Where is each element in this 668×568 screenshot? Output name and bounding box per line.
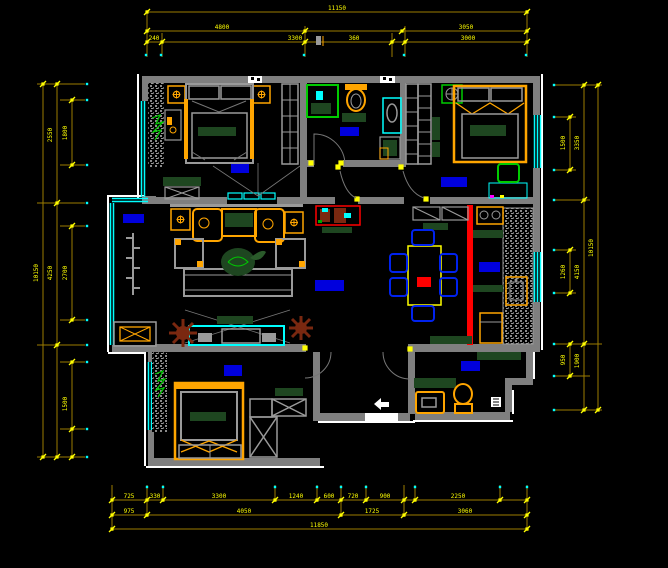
svg-text:1500: 1500 xyxy=(62,396,69,411)
svg-text:10150: 10150 xyxy=(33,264,40,282)
svg-text:4150: 4150 xyxy=(574,264,581,279)
decor-cabinet xyxy=(316,206,360,225)
vanity xyxy=(165,110,181,140)
entry-hall xyxy=(365,398,398,421)
window-bedroom-2 xyxy=(535,115,541,168)
shelf xyxy=(275,388,303,396)
svg-text:360: 360 xyxy=(349,35,360,42)
bench xyxy=(163,177,201,199)
cad-viewport: 11150 4800 3050 240 3300 360 3000 725 33… xyxy=(0,0,668,568)
bath-cabinet xyxy=(380,137,400,159)
svg-text:4250: 4250 xyxy=(47,265,54,280)
svg-text:240: 240 xyxy=(149,35,160,42)
dining-room xyxy=(390,207,468,321)
room-label-master-bedroom xyxy=(231,164,249,173)
dimension-top: 11150 4800 3050 240 3300 360 3000 xyxy=(144,5,530,57)
shelf xyxy=(342,113,366,122)
svg-text:330: 330 xyxy=(150,493,161,500)
armchair xyxy=(276,239,305,268)
shower-icon xyxy=(307,85,338,117)
wardrobe xyxy=(418,84,440,164)
svg-text:4050: 4050 xyxy=(237,508,252,515)
bedroom-3 xyxy=(175,345,331,459)
svg-text:2550: 2550 xyxy=(47,127,54,142)
room-label-kitchen xyxy=(479,262,500,272)
guest-bathroom xyxy=(383,346,521,413)
svg-text:3050: 3050 xyxy=(459,24,474,31)
feature-wall-bedroom3 xyxy=(152,352,167,432)
coat-rack-icon xyxy=(126,233,140,295)
tv-cabinet xyxy=(189,326,284,345)
table-centerpiece xyxy=(417,277,431,287)
master-bedroom xyxy=(163,84,300,199)
floor-plant xyxy=(169,319,197,347)
entry-door xyxy=(365,413,398,421)
bedroom-2 xyxy=(406,84,527,198)
closet xyxy=(406,84,418,164)
feature-wall-master xyxy=(148,83,164,167)
toilet-icon xyxy=(345,84,367,111)
glass-cabinet xyxy=(413,207,468,220)
dining-table xyxy=(408,246,441,305)
double-bed-icon xyxy=(454,86,526,162)
entry-arrow-icon xyxy=(374,398,389,410)
floor-plant xyxy=(289,316,313,340)
room-label-bathroom xyxy=(340,127,359,136)
room-label-living-room xyxy=(315,280,344,291)
svg-text:600: 600 xyxy=(324,493,335,500)
double-bed-icon xyxy=(175,383,243,459)
window-master-bedroom xyxy=(142,101,145,197)
svg-text:4800: 4800 xyxy=(215,24,230,31)
sliding-door-rail xyxy=(228,193,275,199)
floor-plan-drawing: 11150 4800 3050 240 3300 360 3000 725 33… xyxy=(0,0,668,568)
washbasin-icon xyxy=(383,98,401,133)
stove-icon xyxy=(477,207,503,224)
bathroom xyxy=(307,84,401,166)
sofa-single xyxy=(193,209,222,241)
svg-text:1240: 1240 xyxy=(289,493,304,500)
wardrobe xyxy=(282,84,298,164)
svg-text:1800: 1800 xyxy=(62,125,69,140)
room-label-guest-bathroom xyxy=(461,361,480,371)
svg-text:900: 900 xyxy=(380,493,391,500)
shelf xyxy=(217,316,253,324)
window-bedroom-3 xyxy=(149,362,152,430)
svg-text:10150: 10150 xyxy=(588,239,595,257)
end-table xyxy=(171,209,190,230)
dimension-right: 1500 1260 950 3350 4150 1900 10150 xyxy=(553,82,602,413)
svg-text:975: 975 xyxy=(124,508,135,515)
armchair xyxy=(175,239,203,268)
room-label-bedroom-3 xyxy=(224,365,242,376)
nightstand xyxy=(168,86,185,103)
room-label-bedroom-2 xyxy=(441,177,467,187)
svg-text:1260: 1260 xyxy=(560,264,567,279)
shoe-cabinet xyxy=(114,322,156,346)
svg-text:1725: 1725 xyxy=(365,508,380,515)
svg-text:950: 950 xyxy=(560,354,567,365)
svg-text:3300: 3300 xyxy=(288,35,303,42)
svg-text:3060: 3060 xyxy=(458,508,473,515)
svg-text:11850: 11850 xyxy=(310,522,328,529)
svg-text:1500: 1500 xyxy=(560,135,567,150)
counter xyxy=(503,208,533,344)
toilet-icon xyxy=(454,384,472,413)
red-accent-wall xyxy=(467,205,473,345)
desk-and-chair xyxy=(489,164,527,198)
shelf xyxy=(423,223,448,230)
wardrobe xyxy=(250,399,306,457)
room-label-balcony xyxy=(123,214,144,223)
floor-drain-icon xyxy=(491,397,501,407)
window-balcony-side xyxy=(111,203,114,345)
door-bathroom xyxy=(308,134,345,166)
balcony xyxy=(114,214,156,346)
shelf xyxy=(322,227,352,233)
svg-text:725: 725 xyxy=(124,493,135,500)
svg-text:3300: 3300 xyxy=(212,493,227,500)
fridge-icon xyxy=(480,313,502,343)
washbasin-icon xyxy=(416,392,444,413)
sofa-single xyxy=(255,209,284,242)
svg-text:2250: 2250 xyxy=(451,493,466,500)
svg-text:720: 720 xyxy=(348,493,359,500)
svg-text:1900: 1900 xyxy=(574,353,581,368)
end-table xyxy=(285,212,303,233)
double-bed-icon xyxy=(184,84,254,163)
svg-text:2700: 2700 xyxy=(62,265,69,280)
dimension-left: 1800 2700 1500 2550 4250 10150 xyxy=(33,81,88,460)
ceiling-lines xyxy=(213,163,300,196)
sofa-loveseat xyxy=(222,209,256,236)
nightstand xyxy=(253,86,270,103)
dimension-bottom: 725 330 3300 1240 600 720 900 2250 975 4… xyxy=(109,485,530,532)
dining-chairs xyxy=(390,230,457,321)
potted-plant xyxy=(221,248,266,276)
svg-text:11150: 11150 xyxy=(328,5,346,12)
svg-text:3350: 3350 xyxy=(574,135,581,150)
svg-text:3000: 3000 xyxy=(461,35,476,42)
window-kitchen xyxy=(535,252,541,302)
